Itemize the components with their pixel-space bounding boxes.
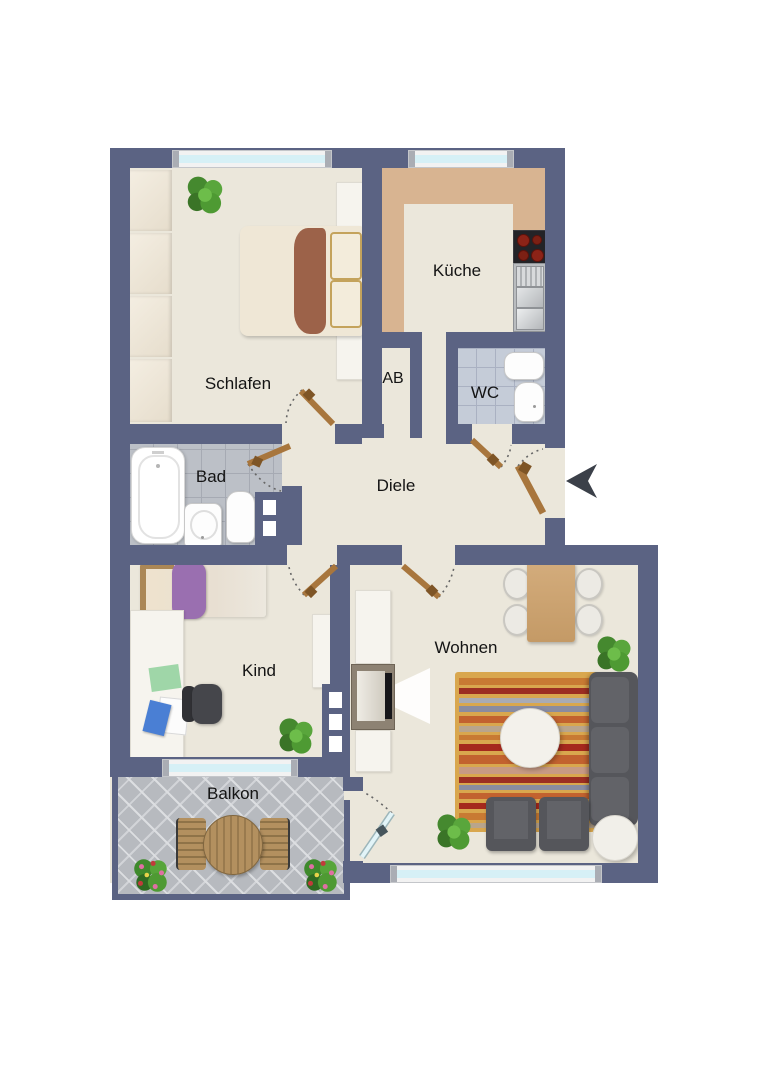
window-glass [414, 155, 508, 163]
plant-icon [182, 172, 228, 218]
window-glass [168, 764, 292, 772]
tv-icon [385, 673, 392, 719]
room-label-kueche: Küche [433, 261, 481, 281]
wall [638, 545, 658, 883]
sink-bowl-small [516, 287, 544, 308]
wall [343, 777, 363, 791]
kitchen-counter-right [513, 204, 545, 230]
room-label-bad: Bad [196, 467, 226, 487]
wall [335, 424, 362, 444]
sink-bowl-large [516, 308, 544, 330]
bathtub-faucet [152, 451, 164, 454]
single-bed [140, 563, 266, 617]
window-glass [178, 155, 326, 163]
room-label-kind: Kind [242, 661, 276, 681]
window-glass [396, 870, 596, 878]
basin-bowl [190, 510, 218, 540]
plant-icon [274, 714, 318, 758]
shaft [322, 684, 348, 764]
shaft-opening [329, 736, 342, 752]
wall [545, 148, 565, 448]
wardrobe [130, 296, 172, 357]
window-cap [163, 760, 169, 776]
wardrobe [130, 359, 172, 422]
basin-drain [201, 536, 204, 539]
room-label-wohnen: Wohnen [434, 638, 497, 658]
room-label-balkon: Balkon [207, 784, 259, 804]
burner [517, 234, 530, 247]
kitchen-counter-top [382, 168, 545, 204]
shaft-opening [263, 500, 276, 515]
plant-icon [592, 632, 636, 676]
window-cap [291, 760, 297, 776]
kitchen-sink-unit [513, 263, 547, 332]
garden-chair [176, 818, 206, 870]
wc-hand-basin [504, 352, 544, 380]
burner [532, 235, 542, 245]
side-table [592, 815, 638, 861]
garden-table [203, 815, 263, 875]
garden-chair [260, 818, 290, 870]
sofa-cushion [591, 727, 629, 773]
wall [446, 332, 565, 348]
burner [518, 250, 529, 261]
window-cap [409, 151, 415, 167]
dining-table [527, 562, 575, 642]
wc-toilet [514, 382, 544, 422]
armchair [539, 797, 589, 851]
wall [110, 424, 282, 444]
sofa [589, 672, 638, 826]
shaft-opening [263, 521, 276, 536]
window [162, 759, 298, 777]
bad-hand-basin [184, 503, 222, 547]
tv-inner [357, 671, 385, 721]
burner [531, 249, 544, 262]
balcony-railing [112, 771, 118, 900]
armchair [486, 797, 536, 851]
dining-chair [575, 568, 603, 600]
shaft-opening [329, 714, 342, 730]
wardrobe [130, 233, 172, 294]
armchair-cushion [494, 801, 528, 839]
wall [512, 424, 565, 444]
wall [410, 332, 422, 438]
window-cap [173, 151, 179, 167]
window [172, 150, 332, 168]
shaft-opening [329, 692, 342, 708]
toilet-drain [533, 405, 536, 408]
drainboard [516, 266, 544, 287]
bathtub-drain [156, 464, 160, 468]
room-label-diele: Diele [377, 476, 416, 496]
tv-cabinet [351, 664, 395, 730]
wall [110, 148, 130, 777]
bathtub [131, 447, 185, 544]
wall [362, 424, 384, 438]
wall [446, 424, 472, 444]
wall [337, 545, 402, 565]
window [408, 150, 514, 168]
entrance-arrow-icon [566, 464, 597, 498]
chair-seat [192, 684, 222, 724]
window-cap [391, 866, 397, 882]
tv-sideboard-bottom [355, 730, 391, 772]
wall [110, 545, 287, 565]
wall [446, 348, 458, 424]
sofa-cushion [591, 677, 629, 723]
coffee-table [500, 708, 560, 768]
pillow [330, 280, 362, 328]
room-label-schlafen: Schlafen [205, 374, 271, 394]
plant-icon [432, 810, 476, 854]
window-cap [595, 866, 601, 882]
office-chair [182, 682, 222, 726]
tv-sideboard-top [355, 590, 391, 664]
window-cap [507, 151, 513, 167]
window [390, 865, 602, 883]
shaft [255, 492, 302, 545]
room-label-ab: AB [382, 370, 403, 388]
wardrobe [130, 170, 172, 231]
stove-icon [513, 230, 547, 265]
floor-plan: Schlafen Küche AB WC Bad Diele Kind Wohn… [0, 0, 763, 1080]
window-cap [325, 151, 331, 167]
flower-pot-icon [130, 854, 172, 896]
armchair-cushion [547, 801, 581, 839]
wall [362, 148, 382, 438]
pillow [330, 232, 362, 280]
wall [455, 545, 658, 565]
bed-headboard [140, 563, 174, 617]
kitchen-counter-left [382, 204, 404, 332]
paper-green [148, 664, 181, 692]
double-bed [240, 226, 362, 336]
bad-toilet [226, 491, 255, 543]
flower-pot-icon [300, 854, 342, 896]
blanket [294, 228, 326, 334]
room-label-wc: WC [471, 383, 499, 403]
